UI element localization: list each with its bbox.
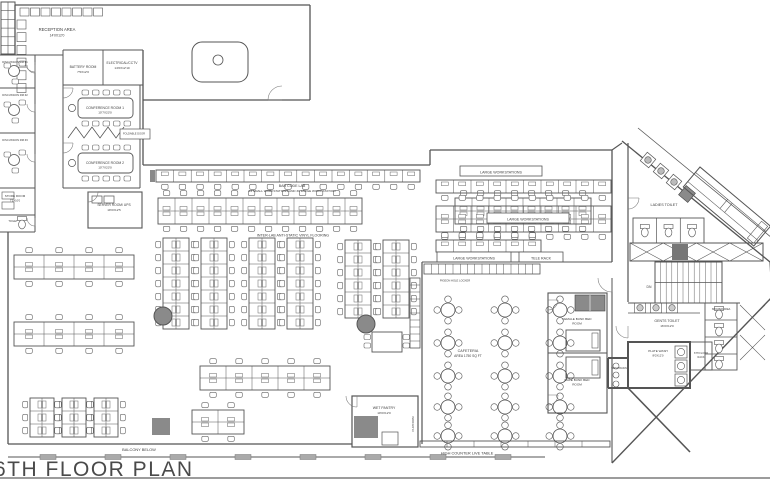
plan-linework bbox=[0, 2, 770, 463]
label-cafeteria-dim: AREA 1750 SQ FT bbox=[454, 354, 482, 358]
label-wet-pantry: WET PANTRY bbox=[373, 406, 396, 410]
label-barcode-lab-sub: 14 SMALL WORKSTATIONS AND 30 LARGE WORK … bbox=[249, 189, 336, 193]
label-platform: PLATFORM bbox=[411, 416, 415, 432]
label-male-bunk: MALE BUNK BED bbox=[564, 378, 590, 382]
label-tele-rack: TELE RACK bbox=[531, 257, 552, 261]
label-female-bunk-2: ROOM bbox=[572, 322, 582, 326]
label-stairs-dn: DN bbox=[647, 285, 652, 289]
label-interlab-flooring: INTER-LAB ANTI-STATIC VINYL FLOORING bbox=[257, 234, 329, 238]
label-store-dim: 7'5X10'0 bbox=[10, 199, 21, 203]
label-high-counter: HIGH COUNTER LIVE TABLE bbox=[441, 451, 494, 456]
label-toilet: TOILET bbox=[8, 219, 18, 223]
label-large-workstations-3: LARGE WORKSTATIONS bbox=[453, 257, 495, 261]
label-wet-pantry-dim: 10'0X12'0 bbox=[377, 411, 391, 415]
label-foldable-door: FOLDABLE DOOR bbox=[123, 132, 145, 136]
label-battery-dim: 7'5X12'0 bbox=[77, 70, 89, 74]
label-male-bunk-2: ROOM bbox=[572, 383, 582, 387]
label-store: STORE ROOM bbox=[5, 194, 26, 198]
label-server-dim: 19'0X12'5 bbox=[107, 208, 121, 212]
label-discussion1: DISCUSSION RM #1 bbox=[2, 60, 28, 64]
label-cafeteria: CAFETERIA bbox=[458, 349, 479, 353]
floor-plan-drawing: RECEPTION AREA 14'0X12'0 BATTERY ROOM 7'… bbox=[0, 0, 770, 483]
label-conference2-dim: 10'7X23'0 bbox=[98, 166, 112, 170]
label-large-workstations-1: LARGE WORKSTATIONS bbox=[480, 171, 522, 175]
label-floor-rack: 6TH FLOOR bbox=[694, 352, 708, 355]
label-shower-area: SHOWER AREA bbox=[712, 308, 731, 311]
label-plate-wash: PLATE WASH bbox=[648, 349, 668, 353]
label-reception: RECEPTION AREA bbox=[39, 27, 76, 32]
label-gents-toilet: GENTS TOILET bbox=[654, 319, 680, 323]
label-reception-dim: 14'0X12'0 bbox=[50, 34, 65, 38]
label-ladies-toilet: LADIES TOILET bbox=[651, 203, 679, 207]
label-large-workstations-2: LARGE WORKSTATIONS bbox=[507, 218, 549, 222]
label-floor-rack-2: RACK bbox=[698, 356, 705, 359]
label-electrical-dim: 14'0X12'10 bbox=[114, 66, 130, 70]
label-conference2: CONFERENCE ROOM 2 bbox=[86, 161, 124, 165]
label-discussion3: DISCUSSION RM #3 bbox=[2, 138, 28, 142]
label-electrical: ELECTRICAL/CCTV bbox=[106, 61, 138, 65]
label-plate-wash-dim: 8'0X12'0 bbox=[652, 354, 663, 358]
label-discussion2: DISCUSSION RM #2 bbox=[2, 93, 28, 97]
label-battery: BATTERY ROOM bbox=[70, 65, 97, 69]
label-barcode-lab: BAR CODE LAB bbox=[279, 184, 306, 188]
label-gents-toilet-dim: 16'0X12'0 bbox=[660, 324, 674, 328]
plan-labels: RECEPTION AREA 14'0X12'0 BATTERY ROOM 7'… bbox=[2, 27, 730, 456]
floor-plan-canvas: RECEPTION AREA 14'0X12'0 BATTERY ROOM 7'… bbox=[0, 0, 770, 483]
label-server: SERVER ROOM/ UPS bbox=[97, 203, 131, 207]
page-divider bbox=[0, 477, 770, 479]
label-pigeon-locker: PIGEON HOLE LOCKER bbox=[440, 279, 470, 283]
label-conference1-dim: 10'7X23'0 bbox=[98, 111, 112, 115]
label-female-bunk: FEMALE BUNK BED bbox=[562, 317, 592, 321]
label-balcony-below: BALCONY BELOW bbox=[122, 447, 156, 452]
label-wash-basin: WASH BASIN bbox=[611, 367, 627, 370]
label-conference1: CONFERENCE ROOM 1 bbox=[86, 106, 124, 110]
